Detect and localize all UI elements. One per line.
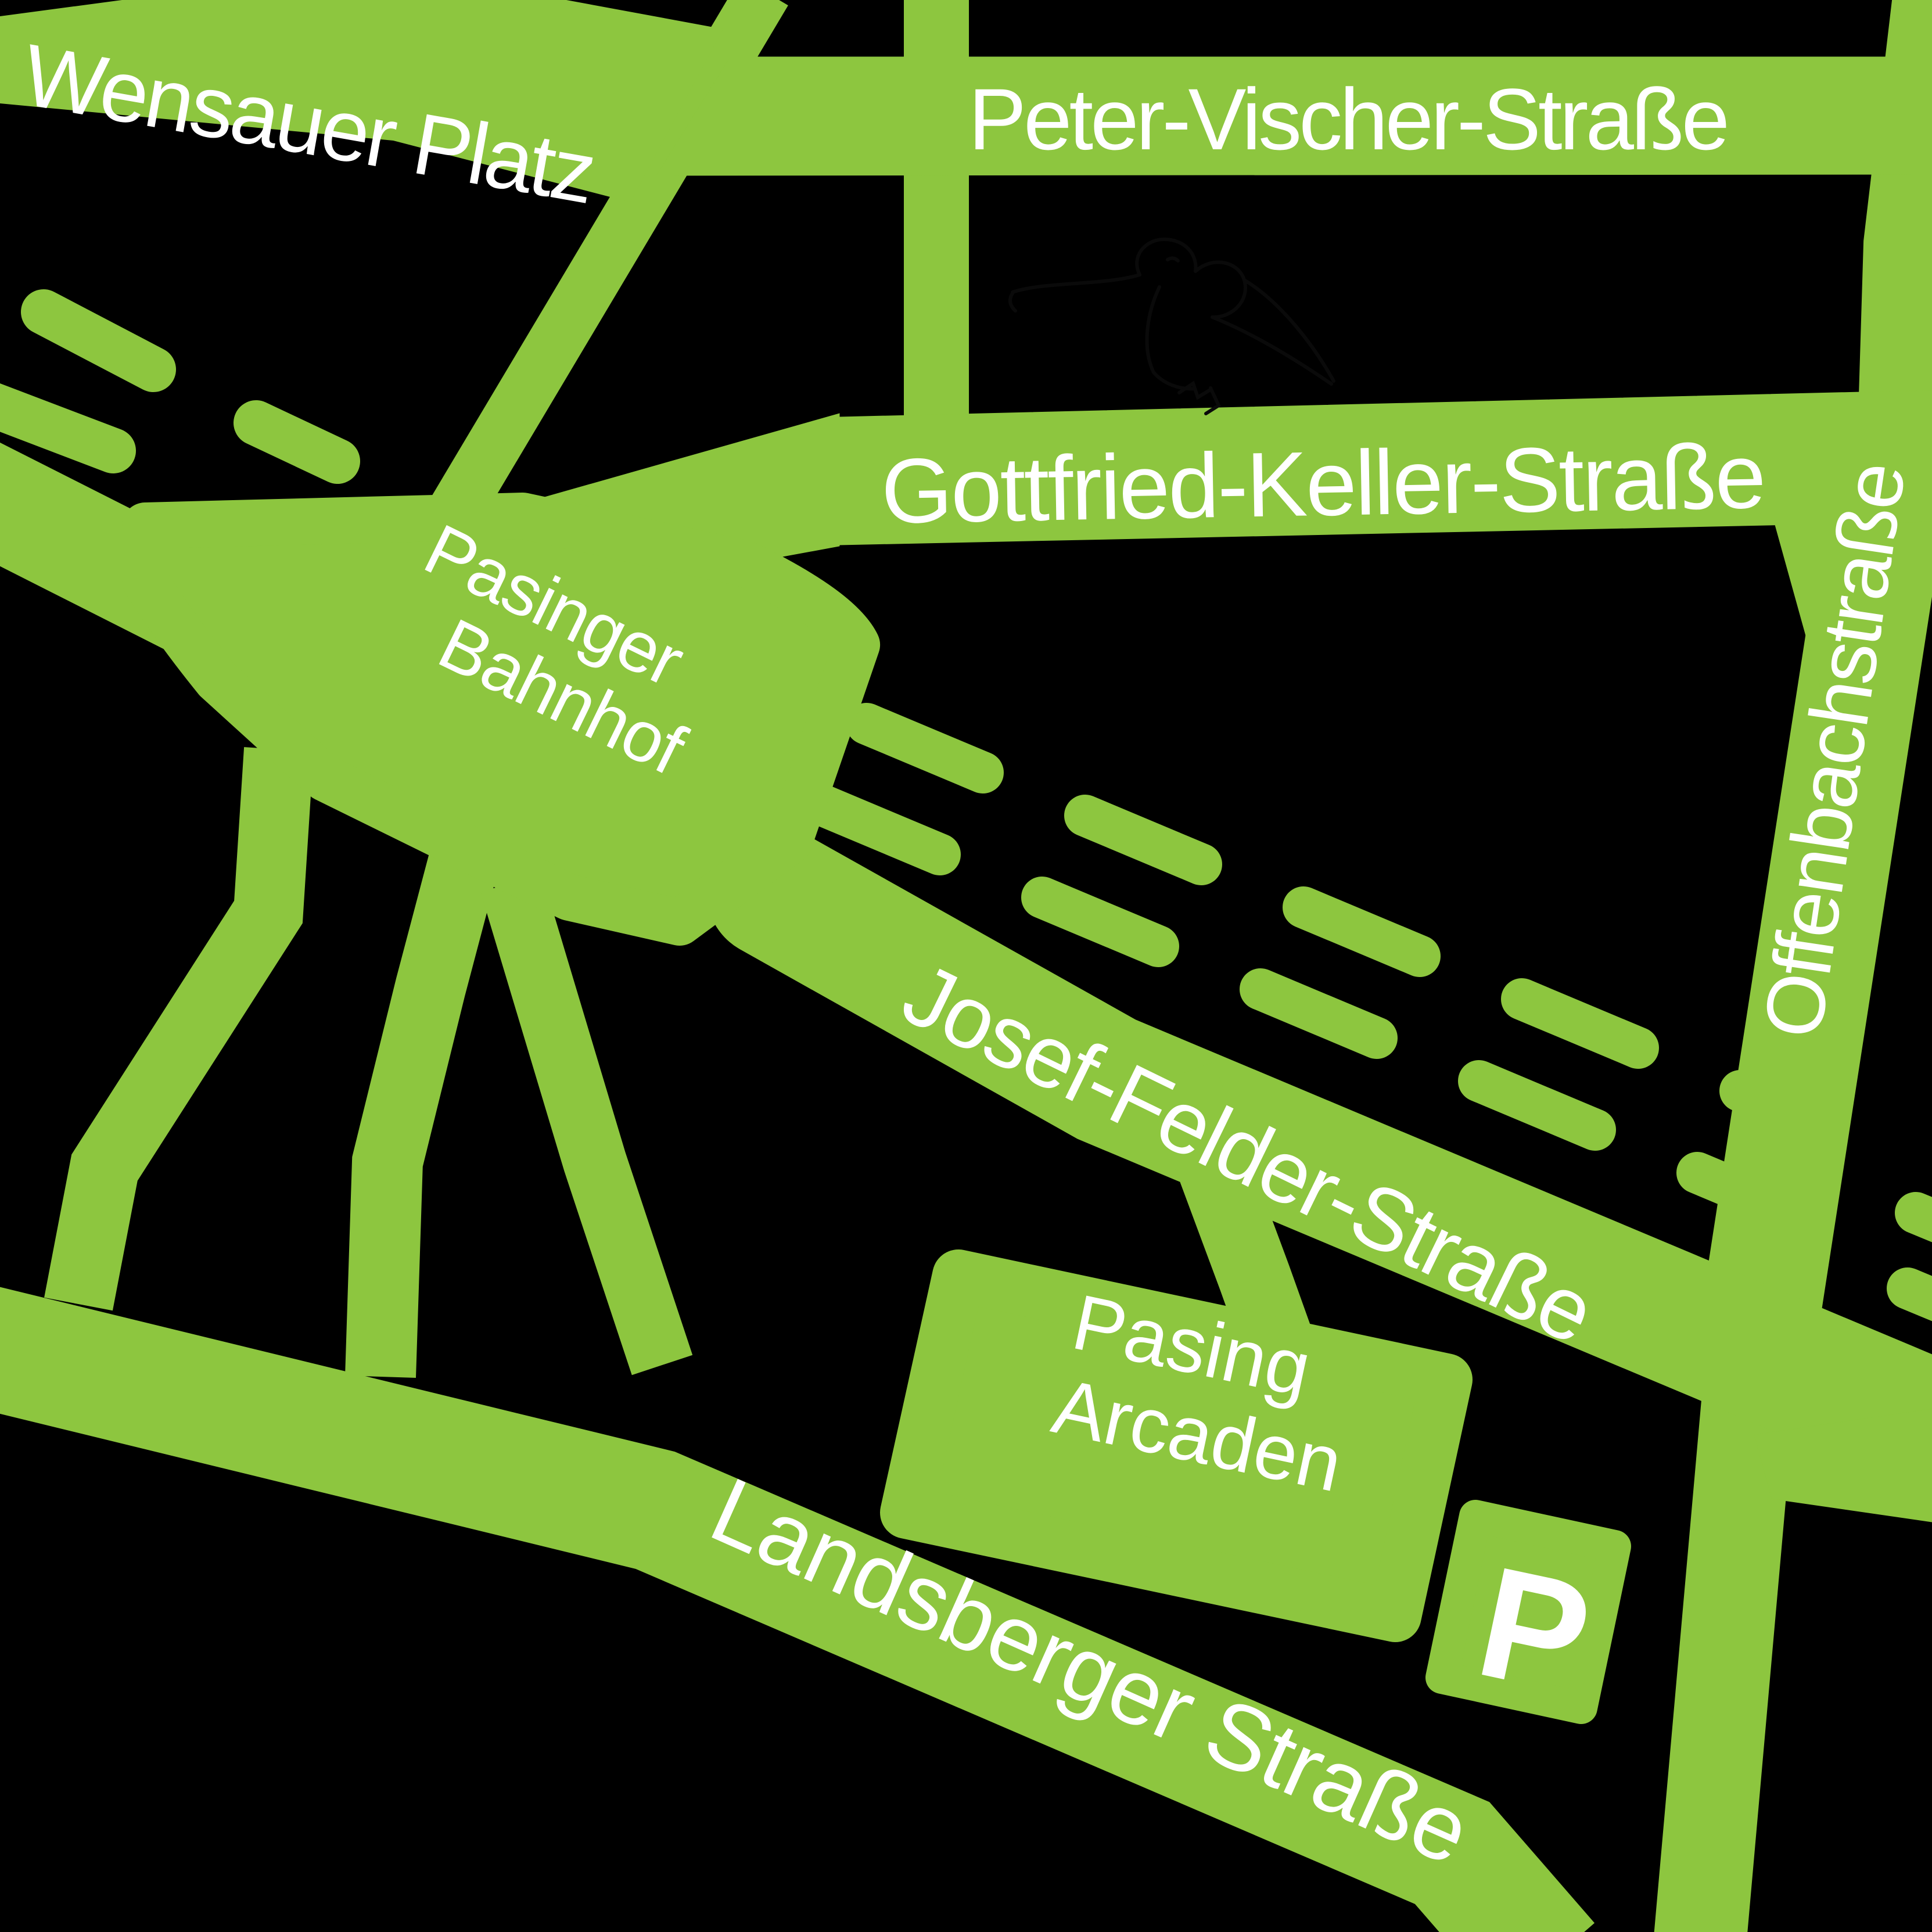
svg-text:Peter-Vischer-Straße: Peter-Vischer-Straße xyxy=(968,70,1727,168)
svg-text:Gottfried-Keller-Straße: Gottfried-Keller-Straße xyxy=(881,425,1765,543)
